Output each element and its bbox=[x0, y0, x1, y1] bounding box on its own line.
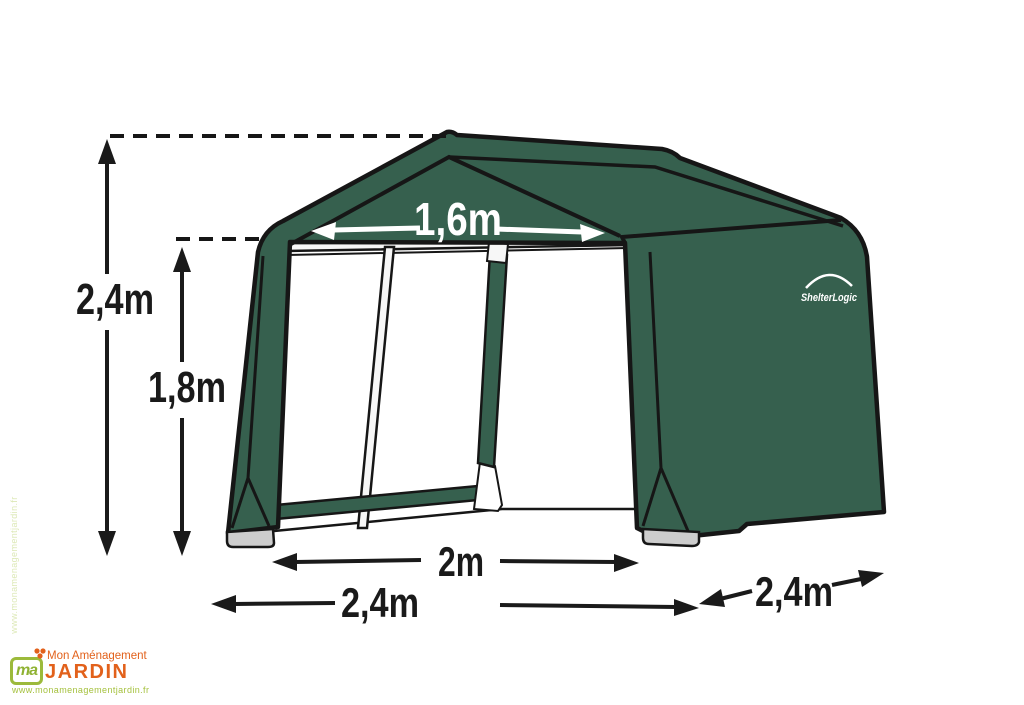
inner-width-line-right bbox=[500, 561, 616, 562]
middle-frame-pole bbox=[358, 247, 394, 528]
front-width-label: 2,4m bbox=[341, 579, 419, 626]
door-height-label: 1,8m bbox=[148, 363, 226, 412]
arrow-right-icon bbox=[614, 554, 639, 572]
total-height-label: 2,4m bbox=[76, 275, 154, 324]
shelter-canvas-silhouette bbox=[228, 132, 884, 536]
left-foot-plate bbox=[227, 529, 274, 547]
door-width-line-left bbox=[334, 228, 420, 230]
arrow-up-icon bbox=[173, 247, 191, 272]
dimension-door-height: 1,8m bbox=[148, 247, 226, 556]
front-width-line-right bbox=[500, 605, 676, 607]
dimension-total-height: 2,4m bbox=[76, 139, 154, 556]
shelter-diagram-svg: ShelterLogic 2,4m 1,8m 1,6m bbox=[0, 0, 1024, 705]
door-flap-foot-bracket bbox=[474, 462, 502, 511]
inner-width-line-left bbox=[295, 560, 421, 562]
depth-line-right bbox=[832, 579, 861, 585]
arrow-left-icon bbox=[272, 553, 297, 571]
arrow-right-icon bbox=[858, 570, 884, 587]
watermark-website: www.monamenagementjardin.fr bbox=[12, 685, 149, 695]
dimension-depth: 2,4m bbox=[699, 568, 884, 615]
product-dimension-diagram: ShelterLogic 2,4m 1,8m 1,6m bbox=[0, 0, 1024, 705]
door-flap-top-connector bbox=[487, 242, 508, 263]
inner-width-label: 2m bbox=[438, 538, 484, 585]
arrow-up-icon bbox=[98, 139, 116, 164]
arrow-right-icon bbox=[674, 599, 699, 616]
arrow-left-icon bbox=[211, 595, 236, 613]
clover-icon bbox=[32, 647, 48, 661]
door-width-label: 1,6m bbox=[414, 193, 502, 245]
door-width-line-right bbox=[496, 229, 582, 232]
right-foot-plate bbox=[643, 529, 699, 546]
depth-label: 2,4m bbox=[755, 568, 833, 615]
shelterlogic-brand-text: ShelterLogic bbox=[801, 292, 857, 304]
dimension-front-width: 2,4m bbox=[211, 579, 699, 626]
depth-line-left bbox=[720, 591, 752, 599]
shelter-interior-frame bbox=[274, 236, 636, 531]
side-watermark-text: www.monamenagementjardin.fr bbox=[9, 435, 19, 695]
rolled-door-flap bbox=[478, 253, 507, 467]
site-watermark-logo: ma Mon Aménagement JARDIN www.monamenage… bbox=[8, 644, 228, 702]
arrow-left-icon bbox=[699, 589, 725, 607]
watermark-name-bottom: JARDIN bbox=[45, 661, 128, 684]
arrow-down-icon bbox=[98, 531, 116, 556]
dimension-inner-width: 2m bbox=[272, 538, 639, 585]
arrow-down-icon bbox=[173, 531, 191, 556]
front-width-line-left bbox=[234, 603, 335, 604]
